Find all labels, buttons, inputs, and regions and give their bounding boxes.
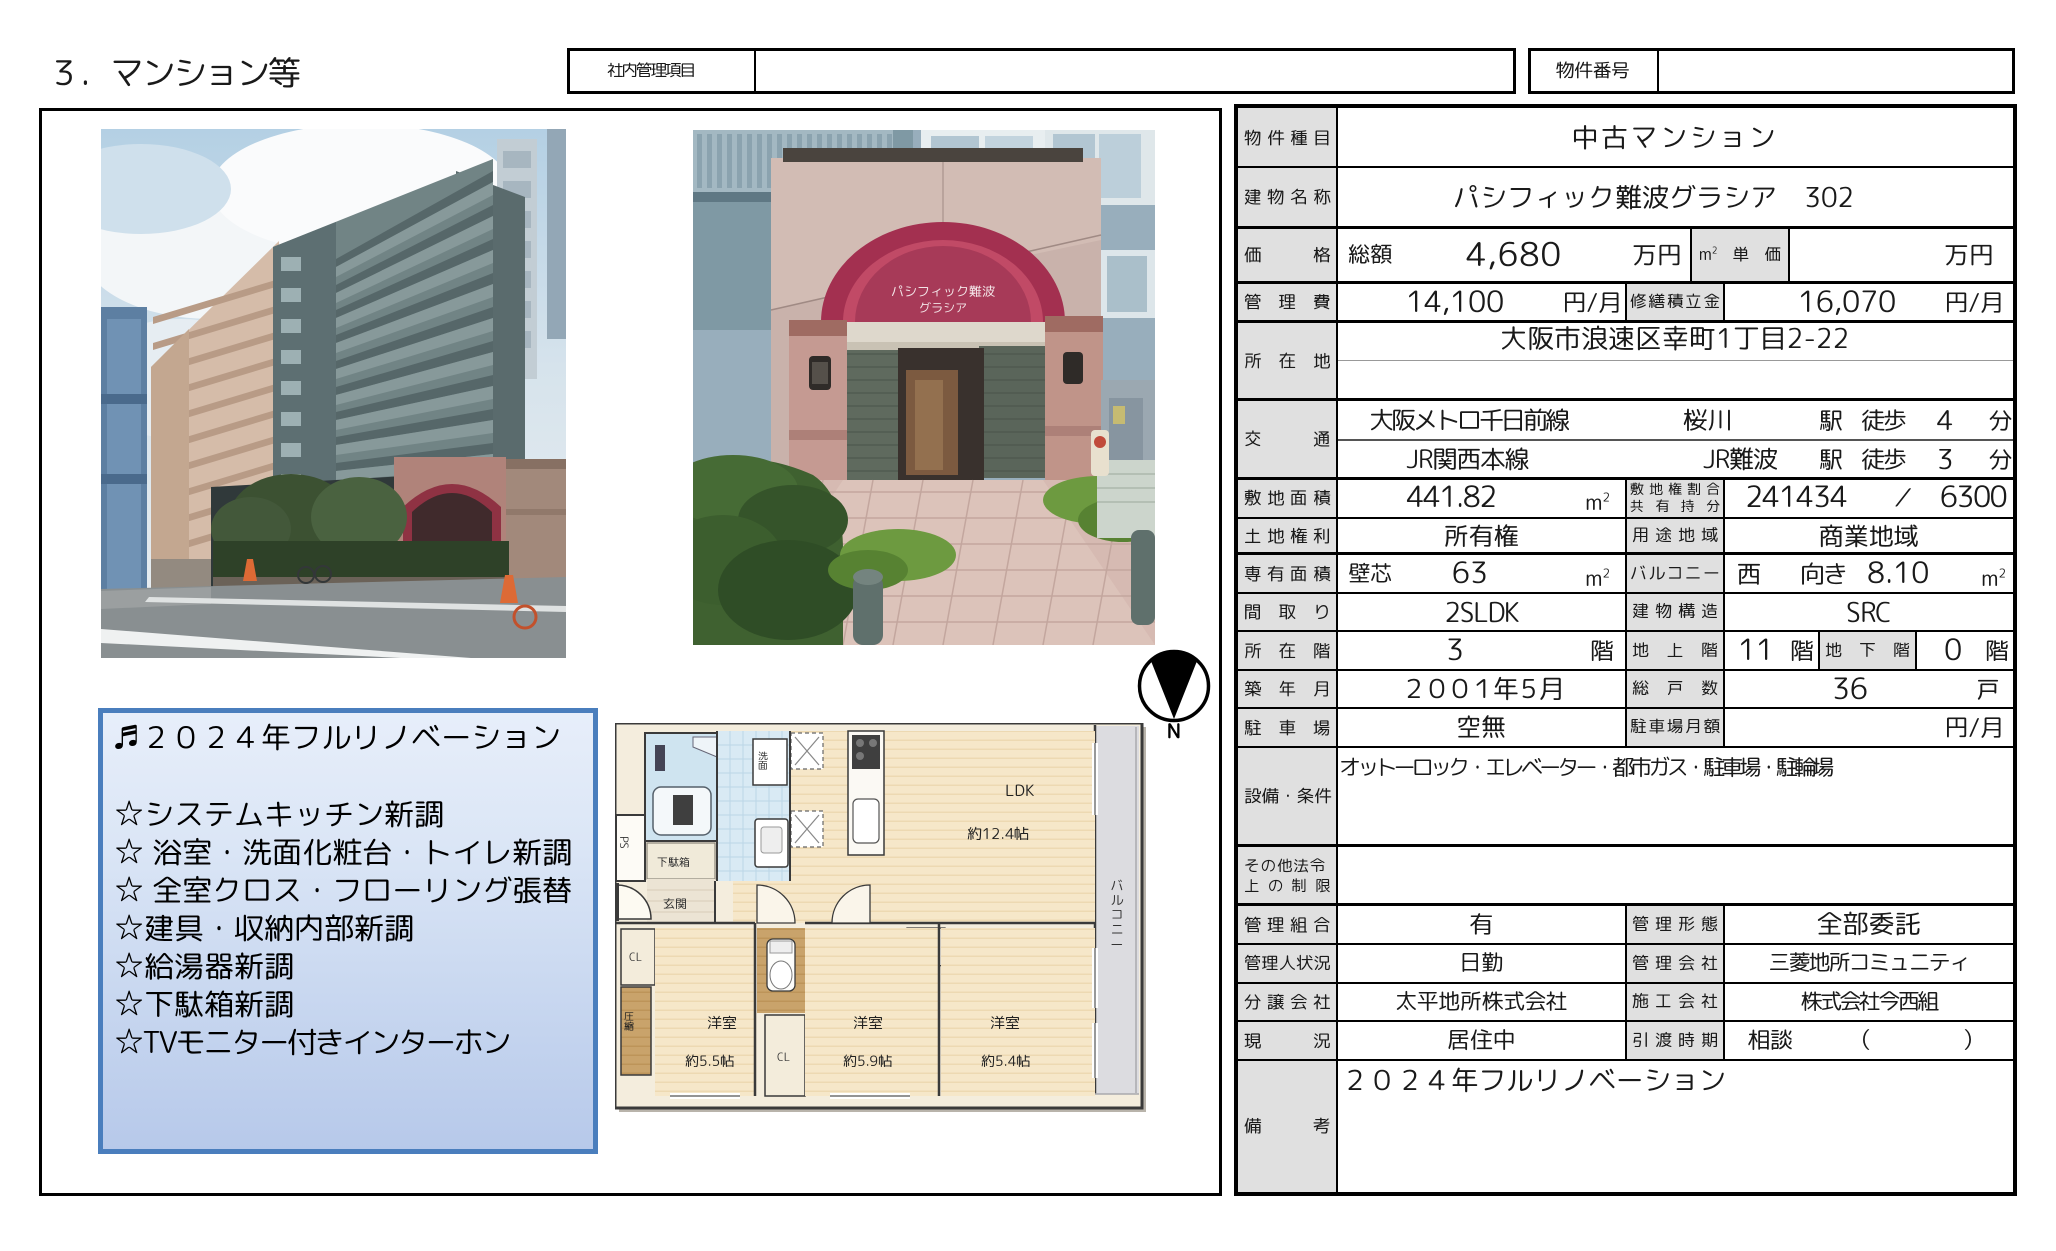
svg-text:LDK: LDK <box>1005 780 1035 802</box>
svg-text:約5.9帖: 約5.9帖 <box>843 1052 892 1071</box>
svg-text:約5.4帖: 約5.4帖 <box>981 1052 1030 1071</box>
svg-text:グラシア: グラシア <box>919 299 967 316</box>
svg-text:洗面: 洗面 <box>756 750 770 770</box>
svg-text:洋室: 洋室 <box>990 1012 1020 1033</box>
svg-text:CL: CL <box>777 1049 790 1065</box>
svg-text:N: N <box>1167 717 1181 745</box>
svg-text:CL: CL <box>629 949 642 965</box>
svg-text:約12.4帖: 約12.4帖 <box>967 823 1029 844</box>
svg-text:約5.5帖: 約5.5帖 <box>685 1052 734 1071</box>
svg-text:PS: PS <box>616 836 632 849</box>
svg-text:玄関: 玄関 <box>663 895 687 912</box>
svg-text:圧縮: 圧縮 <box>622 1011 636 1031</box>
svg-text:洋室: 洋室 <box>707 1012 737 1033</box>
svg-text:バルコニー: バルコニー <box>1108 878 1126 953</box>
svg-text:洋室: 洋室 <box>853 1012 883 1033</box>
svg-text:下駄箱: 下駄箱 <box>657 854 690 870</box>
